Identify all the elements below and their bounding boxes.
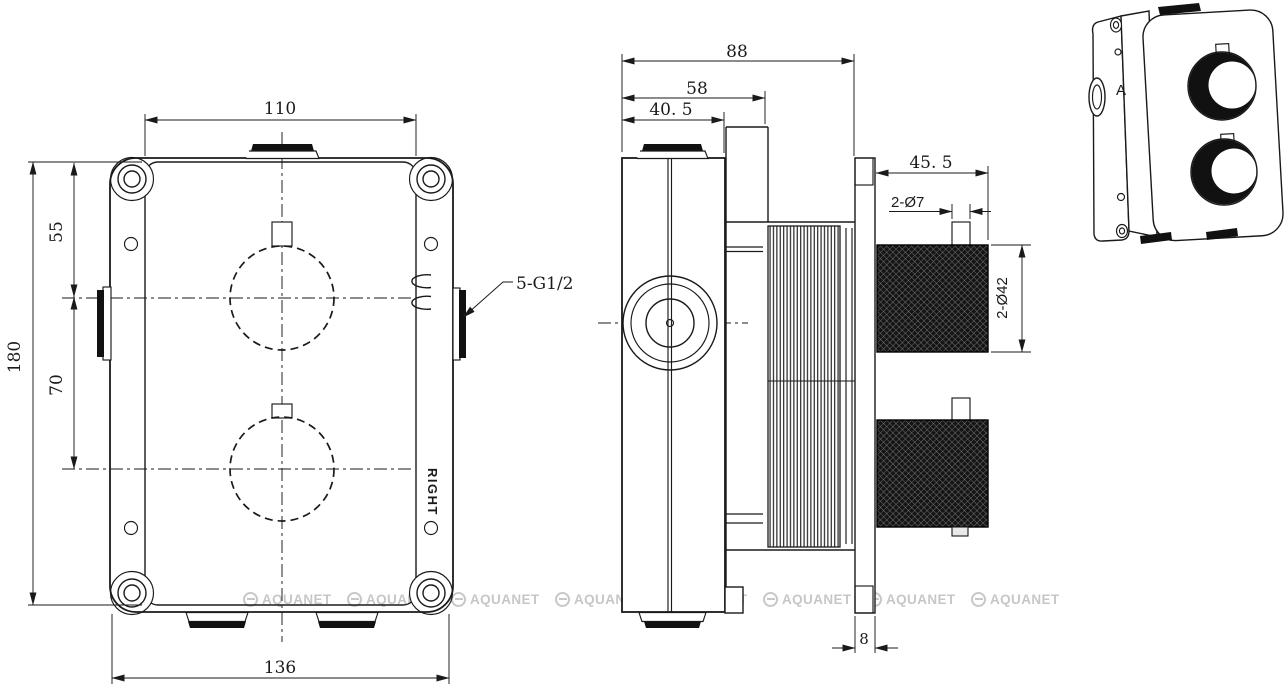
handle1-stem xyxy=(952,222,970,245)
top-port xyxy=(246,144,319,159)
dim-8: 8 xyxy=(832,616,898,653)
dim-136-text: 136 xyxy=(264,658,296,678)
left-port-boss xyxy=(97,287,111,360)
dim-8-text: 8 xyxy=(859,630,869,648)
iso-side-port xyxy=(1089,78,1105,116)
dim-2x7: 2-Ø7 xyxy=(889,194,991,219)
dim-58-text: 58 xyxy=(686,79,708,99)
bottom-lug xyxy=(725,587,743,613)
dim-180: 180 xyxy=(5,162,142,605)
side-top-port xyxy=(637,144,708,159)
dim-88-text: 88 xyxy=(726,42,748,62)
dim-2x7-text: 2-Ø7 xyxy=(891,194,924,211)
ports-callout: 5-G1/2 xyxy=(463,274,574,318)
dim-70-text: 70 xyxy=(47,374,67,396)
dim-136: 136 xyxy=(112,614,449,684)
cover-screw-holes xyxy=(125,238,438,535)
valve-technical-drawing: RIGHT 110 180 55 70 xyxy=(0,0,1288,688)
dim-55: 55 xyxy=(47,163,74,297)
iso-view-label: A xyxy=(1116,82,1126,99)
front-view: RIGHT 110 180 55 70 xyxy=(5,99,574,684)
iso-view: A xyxy=(1089,3,1284,244)
drawing-sheet: AQUANET AQUANET AQUANET AQUANET AQUANET … xyxy=(0,0,1288,688)
cartridge xyxy=(725,127,855,613)
thread-section xyxy=(768,226,840,547)
iso-front-plate xyxy=(1142,9,1284,242)
orientation-label: RIGHT xyxy=(425,468,440,516)
handle2-knurled xyxy=(877,420,988,527)
right-port-boss xyxy=(453,288,466,360)
dim-88: 88 xyxy=(622,42,854,156)
ports-label: 5-G1/2 xyxy=(516,274,574,294)
dim-58: 58 xyxy=(622,79,765,124)
dim-70: 70 xyxy=(47,297,74,469)
wall-plate xyxy=(855,158,875,613)
dim-45-5-text: 45. 5 xyxy=(909,153,952,173)
bottom-port-left xyxy=(186,613,248,629)
body-outline xyxy=(622,158,725,612)
handle1-knurled xyxy=(877,245,988,352)
clip-symbols xyxy=(412,275,431,310)
dim-110-text: 110 xyxy=(264,99,296,119)
dim-55-text: 55 xyxy=(47,221,67,243)
bottom-port-right xyxy=(316,613,378,629)
knob2-stem xyxy=(272,404,292,418)
dim-40-5-text: 40. 5 xyxy=(649,100,692,120)
dim-180-text: 180 xyxy=(5,341,25,373)
handle2-stem xyxy=(952,398,970,420)
knob1-stem xyxy=(272,222,292,246)
side-bottom-port xyxy=(639,613,706,629)
dim-2x42: 2-Ø42 xyxy=(991,245,1031,352)
handle2-bottom-nub xyxy=(952,527,968,536)
side-view: 88 58 40. 5 45. 5 2-Ø7 xyxy=(598,42,1031,653)
dim-2x42-text: 2-Ø42 xyxy=(994,277,1011,319)
